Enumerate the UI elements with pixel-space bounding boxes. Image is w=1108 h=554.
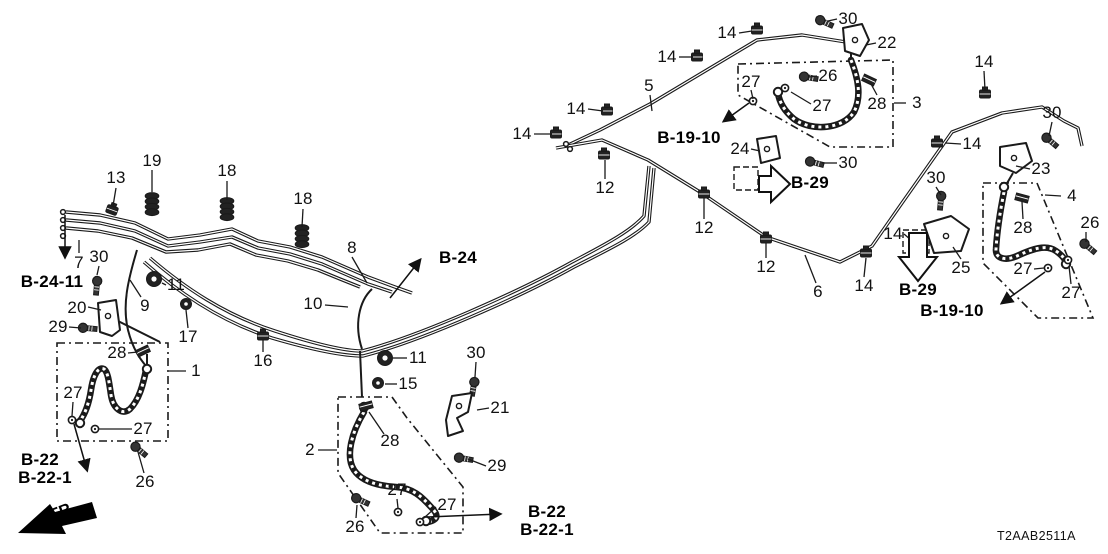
coil-grommet-icon: [220, 198, 234, 221]
pipe-thin: [116, 320, 160, 342]
nut-icon: [373, 378, 384, 389]
callout-27: 27: [1061, 283, 1080, 303]
callout-14: 14: [962, 134, 981, 154]
callout-30: 30: [926, 168, 945, 188]
leader-line: [1069, 266, 1071, 284]
callout-9: 9: [140, 296, 150, 316]
pipe-thin: [358, 289, 372, 349]
callout-7: 7: [74, 253, 84, 273]
clip-icon: [551, 127, 562, 138]
callout-15: 15: [398, 374, 417, 394]
ref-b-22: B-22: [528, 502, 566, 522]
callout-30: 30: [1042, 103, 1061, 123]
callout-30: 30: [89, 247, 108, 267]
callout-6: 6: [813, 282, 823, 302]
callout-1: 1: [191, 361, 201, 381]
callout-28: 28: [867, 94, 886, 114]
callout-27: 27: [387, 480, 406, 500]
banjo-fitting-icon: [1000, 183, 1008, 191]
callout-23: 23: [1031, 159, 1050, 179]
clip-icon: [932, 136, 943, 147]
hose-clip-icon: [1015, 193, 1029, 203]
clip-icon: [752, 23, 763, 34]
pipe-core: [144, 168, 654, 356]
hose-1: [80, 368, 146, 421]
grommet-icon: [378, 351, 393, 366]
callout-26: 26: [1080, 213, 1099, 233]
leader-line: [477, 408, 489, 410]
callout-26: 26: [345, 517, 364, 537]
callout-26: 26: [135, 472, 154, 492]
callout-30: 30: [466, 343, 485, 363]
leader-line: [1034, 268, 1044, 269]
pipe-core: [150, 166, 649, 351]
callout-18: 18: [293, 189, 312, 209]
bolt-icon: [91, 276, 102, 295]
bolt-icon: [814, 14, 835, 30]
hose-2: [350, 412, 437, 522]
pipe-end: [564, 142, 569, 147]
pipe-thin: [360, 351, 362, 397]
clip-icon: [699, 187, 710, 198]
leader-line: [805, 255, 816, 283]
brake-pipes: [61, 35, 1082, 397]
callout-27: 27: [812, 96, 831, 116]
leader-line: [945, 143, 961, 144]
leader-line: [397, 499, 398, 508]
ref-b-22-1: B-22-1: [18, 468, 72, 488]
callout-3: 3: [912, 93, 922, 113]
callout-21: 21: [490, 398, 509, 418]
bolt-icon: [1078, 237, 1098, 256]
ref-b-29: B-29: [791, 173, 829, 193]
callout-12: 12: [694, 218, 713, 238]
fastener-glyphs: [68, 14, 1098, 526]
arrow-b-22-left: [74, 424, 87, 470]
ref-b-29: B-29: [899, 280, 937, 300]
callout-29: 29: [48, 317, 67, 337]
pipe-core: [66, 228, 360, 287]
leader-line: [739, 31, 752, 33]
leader-lines: [69, 19, 1086, 518]
washer-icon: [1064, 256, 1071, 263]
callout-20: 20: [67, 298, 86, 318]
callout-30: 30: [838, 153, 857, 173]
callout-19: 19: [142, 151, 161, 171]
callout-8: 8: [347, 238, 357, 258]
bracket-21-icon: [446, 393, 472, 436]
grommet-icon: [147, 272, 162, 287]
washer-icon: [91, 425, 98, 432]
callout-27: 27: [63, 383, 82, 403]
bolt-icon: [454, 452, 474, 464]
leader-line: [325, 305, 348, 307]
callout-11: 11: [167, 275, 185, 295]
pipe-outline: [150, 166, 649, 351]
ref-b-22: B-22: [21, 450, 59, 470]
callout-29: 29: [487, 456, 506, 476]
banjo-fitting-icon: [76, 419, 84, 427]
ref-b-22-1: B-22-1: [520, 520, 574, 540]
clip-icon: [599, 148, 610, 159]
leader-line: [1049, 122, 1052, 136]
callout-12: 12: [756, 257, 775, 277]
callout-22: 22: [877, 33, 896, 53]
callout-10: 10: [303, 294, 322, 314]
callout-14: 14: [512, 124, 531, 144]
callout-27: 27: [741, 72, 760, 92]
washer-icon: [68, 416, 75, 423]
callout-27: 27: [437, 495, 456, 515]
pipe-end: [61, 210, 66, 215]
banjo-fitting-icon: [143, 365, 151, 373]
callout-14: 14: [657, 47, 676, 67]
nut-icon: [181, 299, 192, 310]
washer-icon: [416, 518, 423, 525]
hose-clip-icon: [136, 345, 151, 357]
callout-14: 14: [717, 23, 736, 43]
callout-14: 14: [566, 99, 585, 119]
leader-line: [186, 310, 188, 328]
leader-line: [791, 92, 811, 104]
callout-25: 25: [951, 258, 970, 278]
leader-line: [475, 362, 476, 377]
callout-16: 16: [253, 351, 272, 371]
part-number: T2AAB2511A: [997, 529, 1076, 543]
dashed-boxes: [57, 60, 1093, 533]
clip-icon: [258, 329, 269, 340]
callout-24: 24: [730, 139, 749, 159]
callout-28: 28: [380, 431, 399, 451]
ref-b-24-11: B-24-11: [21, 272, 84, 292]
washer-icon: [1044, 264, 1051, 271]
callout-5: 5: [644, 76, 654, 96]
leader-line: [97, 266, 99, 275]
pipe-outline: [66, 228, 360, 287]
leader-line: [162, 283, 166, 285]
callout-28: 28: [1013, 218, 1032, 238]
callout-13: 13: [106, 168, 125, 188]
ref-b-19-10: B-19-10: [920, 301, 984, 321]
callout-27: 27: [1013, 259, 1032, 279]
b29-right-arrow-icon: [759, 166, 790, 202]
coil-grommet-icon: [145, 193, 159, 216]
callout-30: 30: [838, 9, 857, 29]
leader-line: [130, 280, 141, 297]
callout-14: 14: [883, 224, 902, 244]
leader-line: [588, 109, 603, 111]
callout-4: 4: [1067, 186, 1077, 206]
ref-b-24: B-24: [439, 248, 477, 268]
bolt-icon: [799, 71, 819, 83]
leader-line: [72, 402, 73, 416]
washer-icon: [781, 84, 788, 91]
parts-diagram: FR. T2AAB2511A 1319181873020291191728127…: [0, 0, 1108, 554]
ref-b-19-10: B-19-10: [657, 128, 721, 148]
callout-26: 26: [818, 66, 837, 86]
pipe-outline: [144, 168, 654, 356]
hose-clip-icon: [359, 401, 373, 411]
leader-line: [1045, 195, 1061, 196]
callout-14: 14: [974, 52, 993, 72]
callout-17: 17: [178, 327, 197, 347]
clip-icon: [105, 202, 119, 216]
callout-2: 2: [305, 440, 315, 460]
box-clip-24: [734, 167, 758, 190]
hose-clip-icon: [862, 74, 877, 86]
leader-line: [864, 258, 866, 277]
arrow-b-19-10-top: [724, 103, 749, 121]
bolt-icon: [804, 156, 824, 170]
washer-icon: [394, 508, 401, 515]
callout-11: 11: [409, 348, 427, 368]
leader-line: [1022, 202, 1023, 219]
leader-line: [828, 19, 837, 21]
callout-27: 27: [133, 419, 152, 439]
callout-14: 14: [854, 276, 873, 296]
clip-icon: [602, 104, 613, 115]
callout-28: 28: [107, 343, 126, 363]
callout-12: 12: [595, 178, 614, 198]
pipe-end: [568, 147, 573, 152]
callout-18: 18: [217, 161, 236, 181]
hose-2-texture: [350, 412, 437, 522]
coil-grommet-icon: [295, 225, 309, 248]
clip-icon: [692, 50, 703, 61]
